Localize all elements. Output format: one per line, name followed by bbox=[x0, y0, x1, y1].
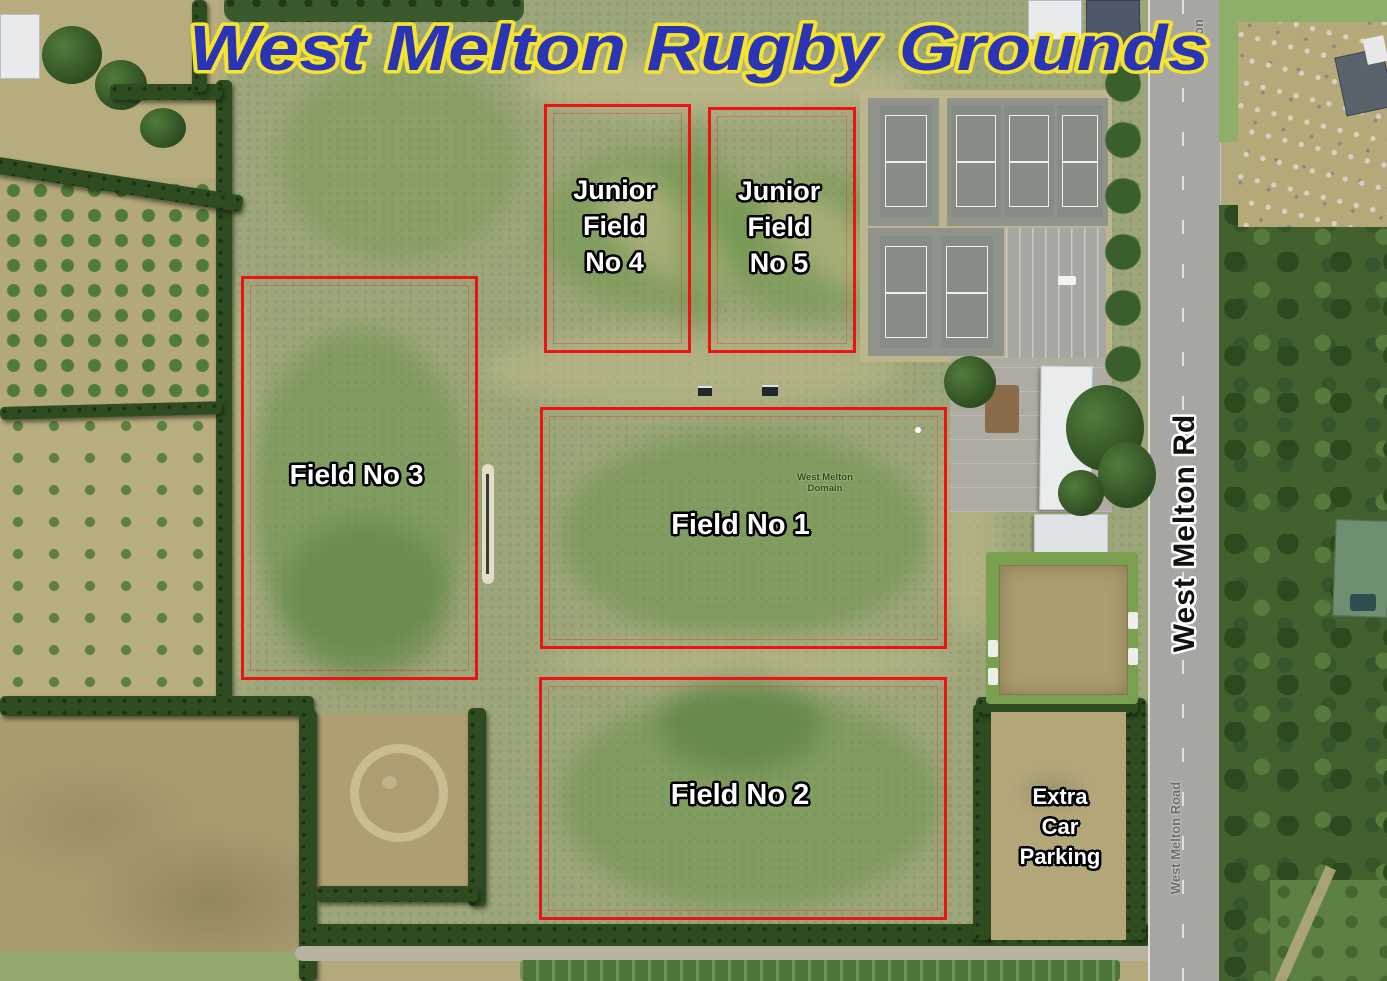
plant-rows bbox=[520, 960, 1120, 981]
label-line: Extra bbox=[1032, 782, 1087, 812]
label-line: Field bbox=[583, 208, 646, 244]
hedge-row bbox=[216, 80, 232, 708]
parked-vehicle bbox=[1058, 276, 1076, 285]
tree bbox=[944, 356, 996, 408]
map-road-name: West Melton Road bbox=[1168, 753, 1184, 923]
tree bbox=[1098, 442, 1156, 508]
tree bbox=[1058, 470, 1104, 516]
ring-center bbox=[382, 776, 397, 789]
label-line: Field No 1 bbox=[671, 509, 810, 542]
label-line: Junior bbox=[738, 173, 821, 209]
tennis-court bbox=[951, 105, 1001, 217]
tennis-court bbox=[941, 236, 993, 348]
parked-vehicle bbox=[988, 668, 998, 685]
tree bbox=[140, 108, 186, 148]
cricket-pitch-strip bbox=[482, 464, 494, 584]
field-label-field-no-3: Field No 3 bbox=[241, 276, 472, 674]
label-line: No 4 bbox=[585, 244, 644, 280]
gravel-path bbox=[295, 946, 1157, 961]
label-line: Parking bbox=[1020, 842, 1101, 872]
label-line: Field No 3 bbox=[290, 459, 424, 491]
tree bbox=[42, 26, 102, 84]
field-label-junior-field-no-5: Junior Field No 5 bbox=[708, 107, 850, 347]
parked-vehicle bbox=[1128, 648, 1138, 665]
hedge-row bbox=[316, 886, 478, 902]
tennis-court bbox=[1004, 105, 1054, 217]
ring-feature bbox=[350, 744, 448, 842]
southwest-paddock bbox=[0, 716, 301, 981]
bowling-green bbox=[999, 565, 1128, 695]
label-line: Field No 2 bbox=[671, 779, 810, 812]
aerial-map: West Melton Domain West Melton Road Melt… bbox=[0, 0, 1387, 981]
page-title: West Melton Rugby Grounds bbox=[189, 12, 1209, 84]
bench bbox=[762, 385, 778, 396]
label-line: Junior bbox=[573, 172, 656, 208]
field-label-junior-field-no-4: Junior Field No 4 bbox=[544, 104, 685, 347]
orchard-upper bbox=[0, 178, 218, 410]
field-label-field-no-1: Field No 1 bbox=[540, 407, 941, 643]
tennis-court bbox=[880, 105, 932, 217]
parked-vehicle bbox=[1128, 612, 1138, 629]
label-line: Field bbox=[747, 209, 810, 245]
grass-strip bbox=[0, 952, 300, 981]
label-line: No 5 bbox=[750, 245, 809, 281]
farm-building bbox=[0, 14, 40, 79]
hedge-row bbox=[0, 696, 314, 716]
tennis-court bbox=[880, 236, 932, 348]
extra-car-parking-label: Extra Car Parking bbox=[985, 772, 1135, 882]
map-title-graphic: West Melton Rugby Grounds bbox=[166, 2, 1232, 96]
parking-lot bbox=[1006, 228, 1106, 360]
pool bbox=[1350, 594, 1376, 611]
church-annex bbox=[1363, 35, 1387, 65]
bench bbox=[698, 386, 712, 396]
hedge-row bbox=[468, 708, 486, 906]
west-melton-rd-label: West Melton Rd bbox=[1163, 401, 1207, 665]
parked-vehicle bbox=[988, 640, 998, 657]
label-line: Car bbox=[1042, 812, 1079, 842]
court-divider bbox=[939, 98, 947, 226]
orchard-lower bbox=[0, 410, 218, 700]
field-label-field-no-2: Field No 2 bbox=[539, 677, 941, 914]
